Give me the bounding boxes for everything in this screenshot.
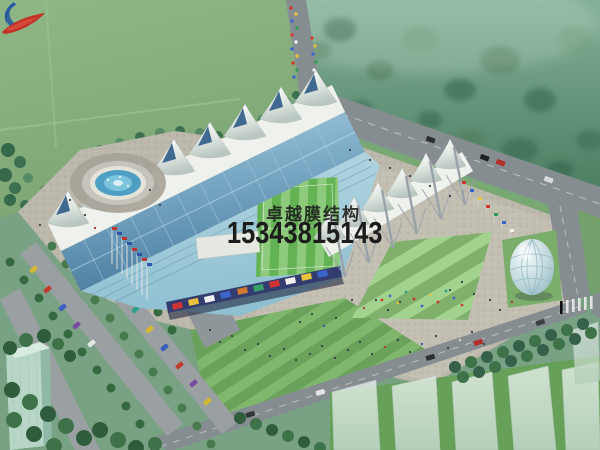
fountain	[70, 153, 166, 213]
watermark-phone-number: 15343815143	[227, 215, 383, 251]
glass-dome-pavilion	[502, 230, 562, 308]
rendering-canvas: 卓越膜结构 15343815143	[0, 0, 600, 450]
glass-dome	[510, 239, 554, 295]
watermark-logo-icon	[0, 0, 46, 36]
